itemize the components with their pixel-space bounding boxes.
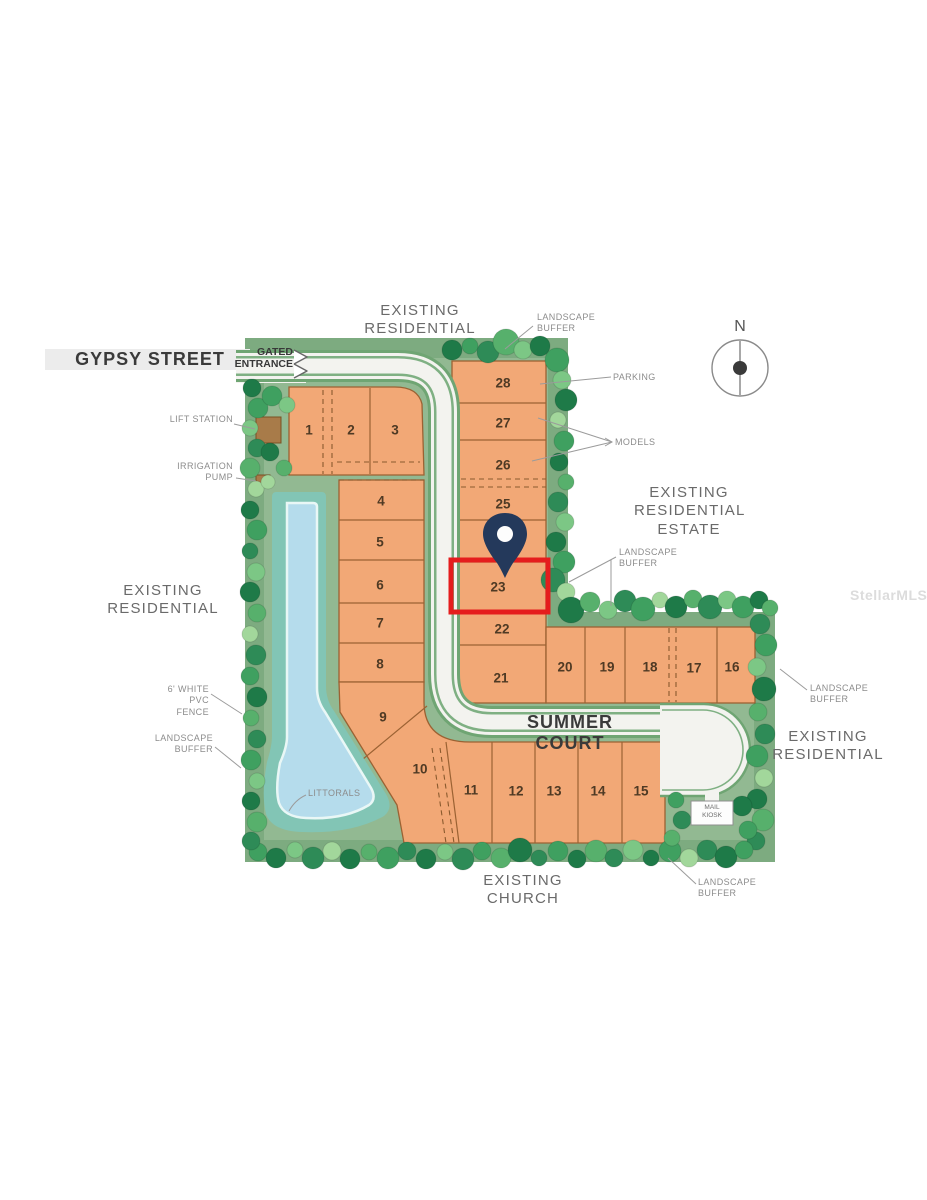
area-existing-residential-top: EXISTING RESIDENTIAL <box>364 302 476 339</box>
lot-number-17: 17 <box>686 661 701 676</box>
lot-number-3: 3 <box>391 423 399 438</box>
lot-number-6: 6 <box>376 578 384 593</box>
lot-number-14: 14 <box>590 784 605 799</box>
lot-number-28: 28 <box>495 376 510 391</box>
lot-number-13: 13 <box>546 784 561 799</box>
gated-entrance-label: GATED ENTRANCE <box>233 346 293 370</box>
lot-number-15: 15 <box>633 784 648 799</box>
callout-parking: PARKING <box>613 372 673 383</box>
lot-number-10: 10 <box>412 762 427 777</box>
lot-number-12: 12 <box>508 784 523 799</box>
lot-number-9: 9 <box>379 710 387 725</box>
lot-number-20: 20 <box>557 660 572 675</box>
lot-number-26: 26 <box>495 458 510 473</box>
callout-mail-kiosk: MAIL KIOSK <box>700 804 724 820</box>
lot-number-2: 2 <box>347 423 355 438</box>
callout-models: MODELS <box>615 437 675 448</box>
lot-number-21: 21 <box>493 671 508 686</box>
cul-de-sac <box>660 704 750 796</box>
lot-number-4: 4 <box>377 494 385 509</box>
site-plan: GYPSY STREET GATED ENTRANCE EXISTING RES… <box>0 0 927 1200</box>
callout-lift-station: LIFT STATION <box>169 414 233 425</box>
lot-number-25: 25 <box>495 497 510 512</box>
lot-number-27: 27 <box>495 416 510 431</box>
callout-landscape-buffer-left: LANDSCAPE BUFFER <box>151 733 213 756</box>
lot-number-7: 7 <box>376 616 384 631</box>
lot-number-8: 8 <box>376 657 384 672</box>
lot-number-22: 22 <box>494 622 509 637</box>
area-existing-residential-estate: EXISTING RESIDENTIAL ESTATE <box>634 484 744 539</box>
area-existing-residential-left: EXISTING RESIDENTIAL <box>107 582 219 619</box>
summer-court-label: SUMMER COURT <box>490 712 650 754</box>
lot-number-1: 1 <box>305 423 313 438</box>
lot-number-19: 19 <box>599 660 614 675</box>
callout-landscape-buffer-right: LANDSCAPE BUFFER <box>810 683 870 706</box>
lot-number-11: 11 <box>464 783 478 798</box>
watermark: StellarMLS <box>850 587 927 603</box>
callout-pvc-fence: 6' WHITE PVC FENCE <box>157 684 209 718</box>
callout-irrigation-pump: IRRIGATION PUMP <box>169 461 233 484</box>
callout-landscape-buffer-top: LANDSCAPE BUFFER <box>537 312 597 335</box>
callout-landscape-buffer-bottom: LANDSCAPE BUFFER <box>698 877 758 900</box>
compass-north-label: N <box>726 318 754 336</box>
gypsy-street-label: GYPSY STREET <box>60 349 240 370</box>
lot-number-18: 18 <box>642 660 657 675</box>
lot-number-5: 5 <box>376 535 384 550</box>
north-arrow-icon <box>712 340 768 396</box>
area-existing-church: EXISTING CHURCH <box>467 872 579 909</box>
area-existing-residential-right: EXISTING RESIDENTIAL <box>772 728 884 765</box>
callout-littorals: LITTORALS <box>308 788 378 799</box>
callout-landscape-buffer-mid: LANDSCAPE BUFFER <box>619 547 679 570</box>
lot-number-23: 23 <box>490 580 505 595</box>
lot-number-16: 16 <box>724 660 739 675</box>
